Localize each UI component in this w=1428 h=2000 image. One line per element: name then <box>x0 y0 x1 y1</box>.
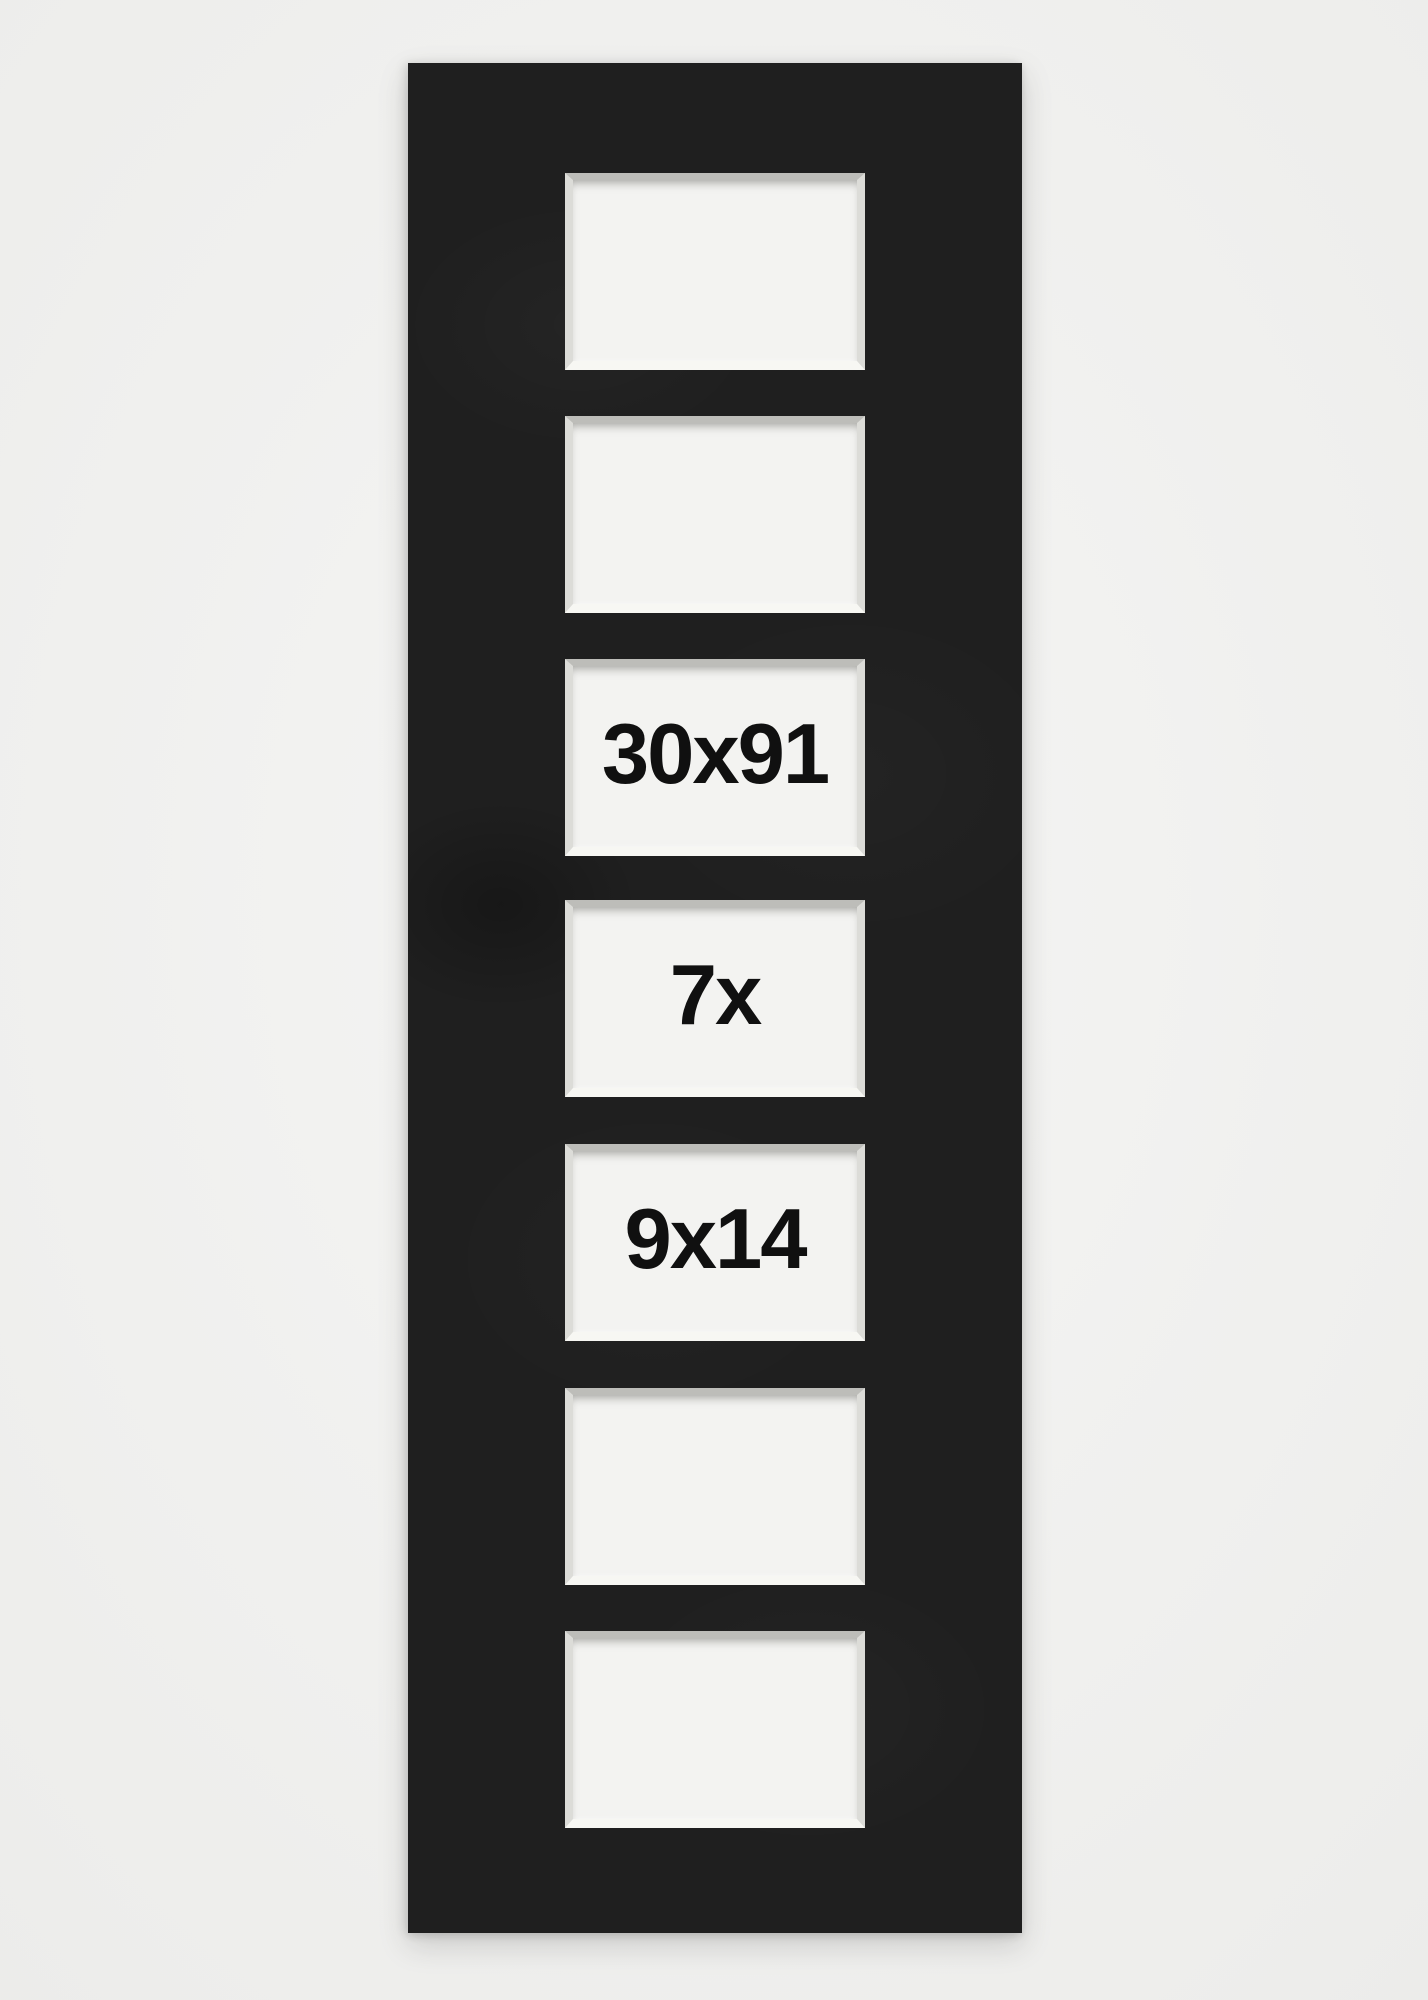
aperture-4-label-count: 7x <box>670 953 761 1038</box>
aperture-4: 7x <box>565 900 865 1097</box>
aperture-7 <box>565 1631 865 1828</box>
aperture-3: 30x91 <box>565 659 865 856</box>
aperture-2 <box>565 416 865 613</box>
aperture-5: 9x14 <box>565 1144 865 1341</box>
aperture-1 <box>565 173 865 370</box>
product-photo-backdrop: 30x91 7x 9x14 <box>0 0 1428 2000</box>
aperture-5-label-size: 9x14 <box>624 1197 805 1282</box>
passepartout-mat: 30x91 7x 9x14 <box>408 63 1022 1933</box>
aperture-3-label-size: 30x91 <box>602 712 828 797</box>
aperture-6 <box>565 1388 865 1585</box>
